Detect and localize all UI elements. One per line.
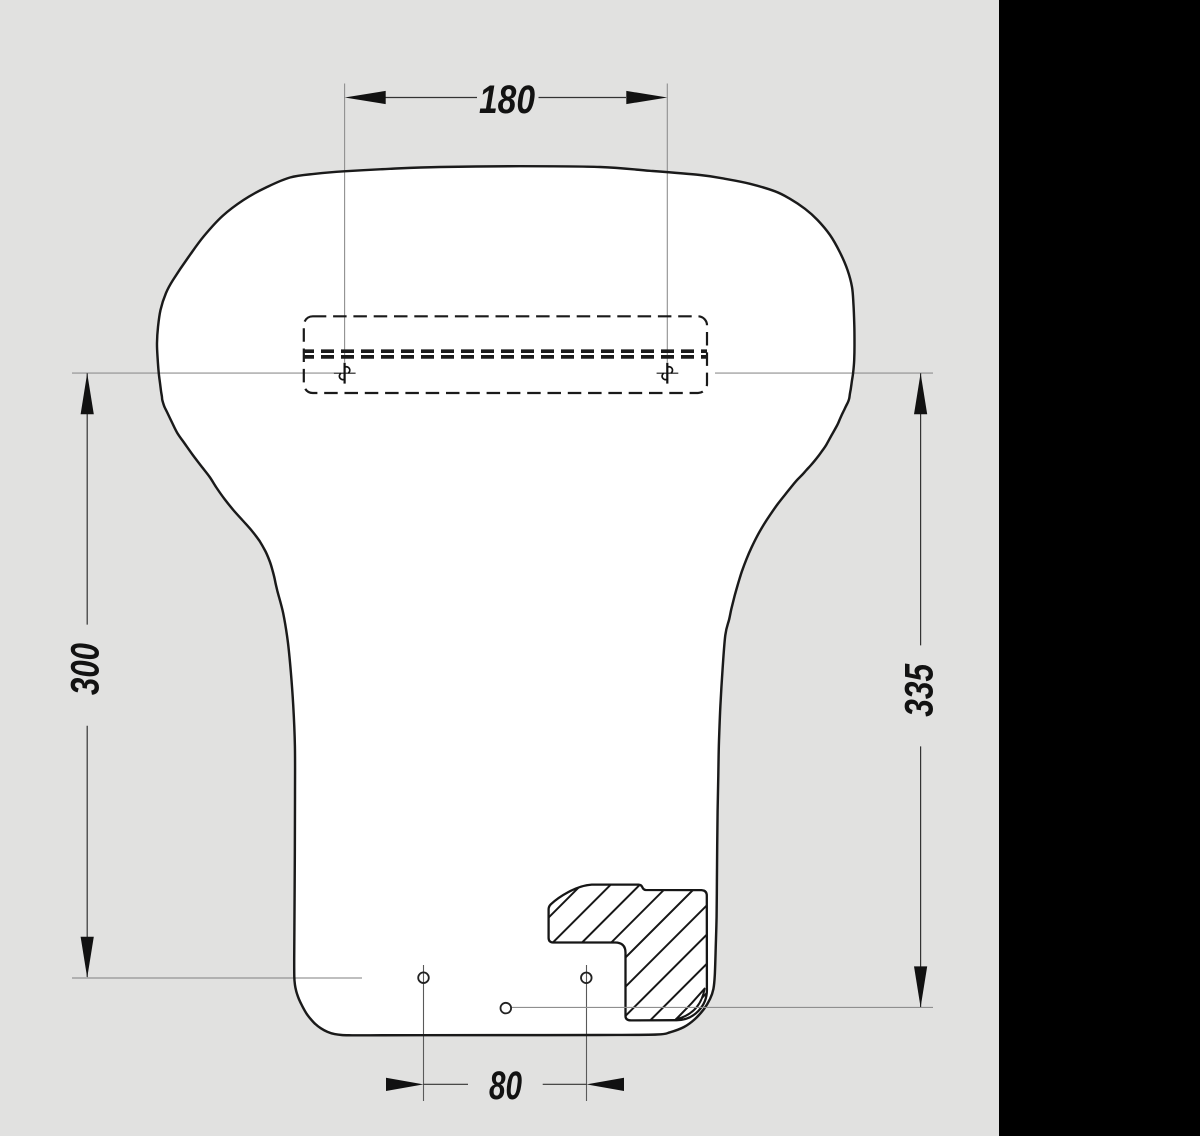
svg-text:180: 180 <box>479 78 535 122</box>
svg-text:80: 80 <box>489 1064 522 1108</box>
svg-text:300: 300 <box>64 643 108 695</box>
svg-text:335: 335 <box>897 663 941 717</box>
